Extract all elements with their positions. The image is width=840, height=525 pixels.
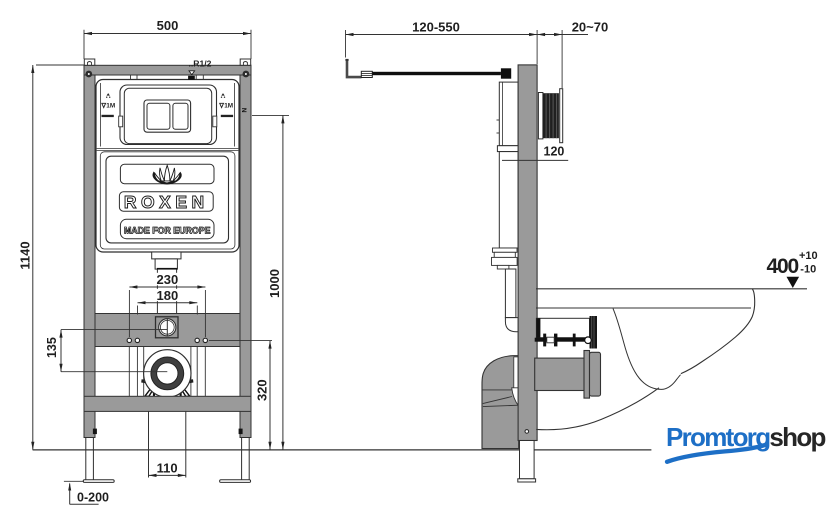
svg-text:N: N [242,108,249,113]
svg-text:135: 135 [45,337,59,358]
svg-text:120-550: 120-550 [412,20,460,35]
svg-text:ROXEN: ROXEN [124,192,209,212]
svg-text:500: 500 [157,18,179,33]
svg-text:MADE FOR EUROPE: MADE FOR EUROPE [124,226,211,236]
svg-text:400: 400 [767,255,799,278]
svg-text:1000: 1000 [267,269,282,298]
svg-text:20~70: 20~70 [572,20,609,35]
svg-text:1M: 1M [106,103,115,110]
svg-text:0-200: 0-200 [77,490,109,504]
svg-text:1140: 1140 [18,241,33,269]
svg-text:1M: 1M [224,103,233,110]
svg-text:..R1/2: ..R1/2 [189,58,212,68]
svg-text:110: 110 [157,461,178,476]
svg-text:230: 230 [157,272,179,287]
svg-text:+10: +10 [799,250,818,262]
svg-text:-10: -10 [800,263,816,275]
svg-text:320: 320 [254,379,269,401]
svg-text:120: 120 [544,145,565,159]
svg-text:180: 180 [157,288,179,303]
